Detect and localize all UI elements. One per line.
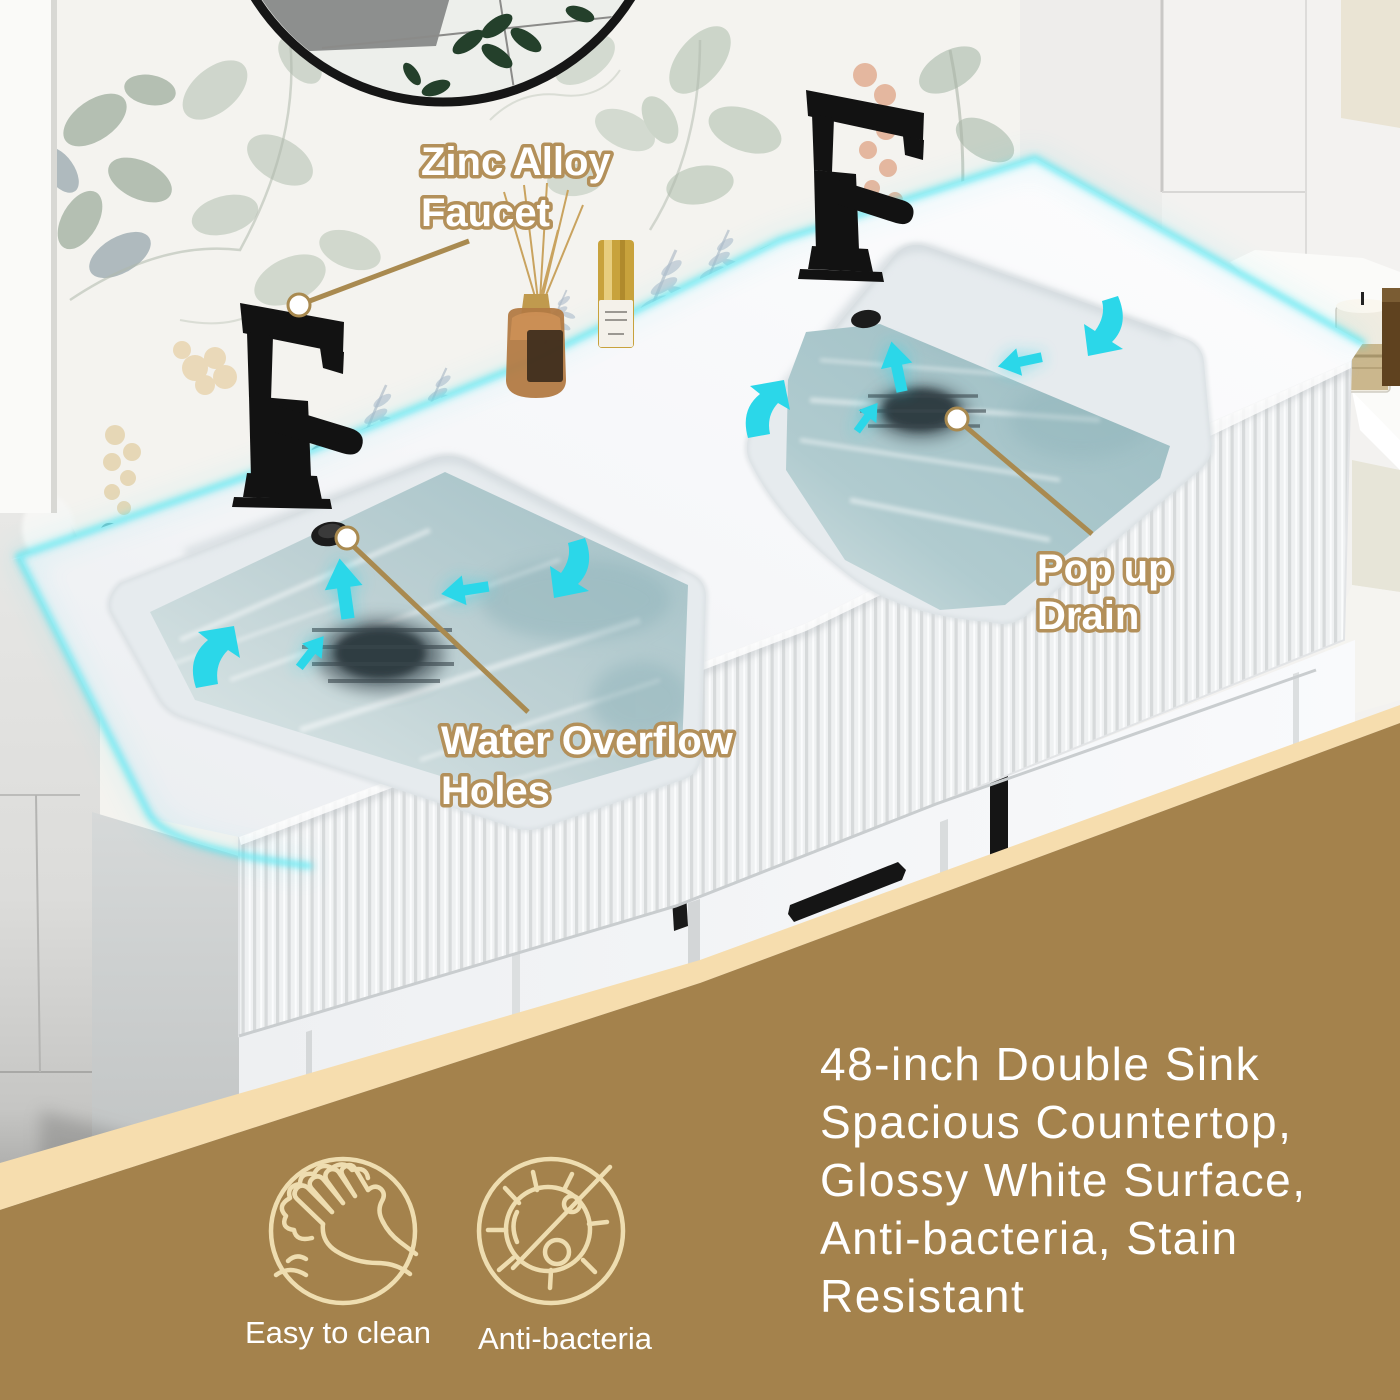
svg-text:Zinc Alloy: Zinc Alloy — [421, 140, 611, 184]
svg-text:Drain: Drain — [1037, 594, 1139, 638]
svg-text:Glossy White Surface,: Glossy White Surface, — [820, 1154, 1307, 1206]
svg-text:Water Overflow: Water Overflow — [441, 719, 734, 763]
svg-text:Easy to clean: Easy to clean — [245, 1315, 431, 1350]
svg-text:48-inch Double Sink: 48-inch Double Sink — [820, 1038, 1260, 1090]
svg-text:Faucet: Faucet — [421, 191, 550, 235]
svg-text:Anti-bacteria, Stain: Anti-bacteria, Stain — [820, 1212, 1239, 1264]
svg-text:Pop up: Pop up — [1037, 547, 1173, 591]
svg-text:Holes: Holes — [441, 769, 550, 813]
svg-text:Resistant: Resistant — [820, 1270, 1025, 1322]
svg-text:Spacious Countertop,: Spacious Countertop, — [820, 1096, 1292, 1148]
svg-text:Anti-bacteria: Anti-bacteria — [478, 1321, 653, 1356]
